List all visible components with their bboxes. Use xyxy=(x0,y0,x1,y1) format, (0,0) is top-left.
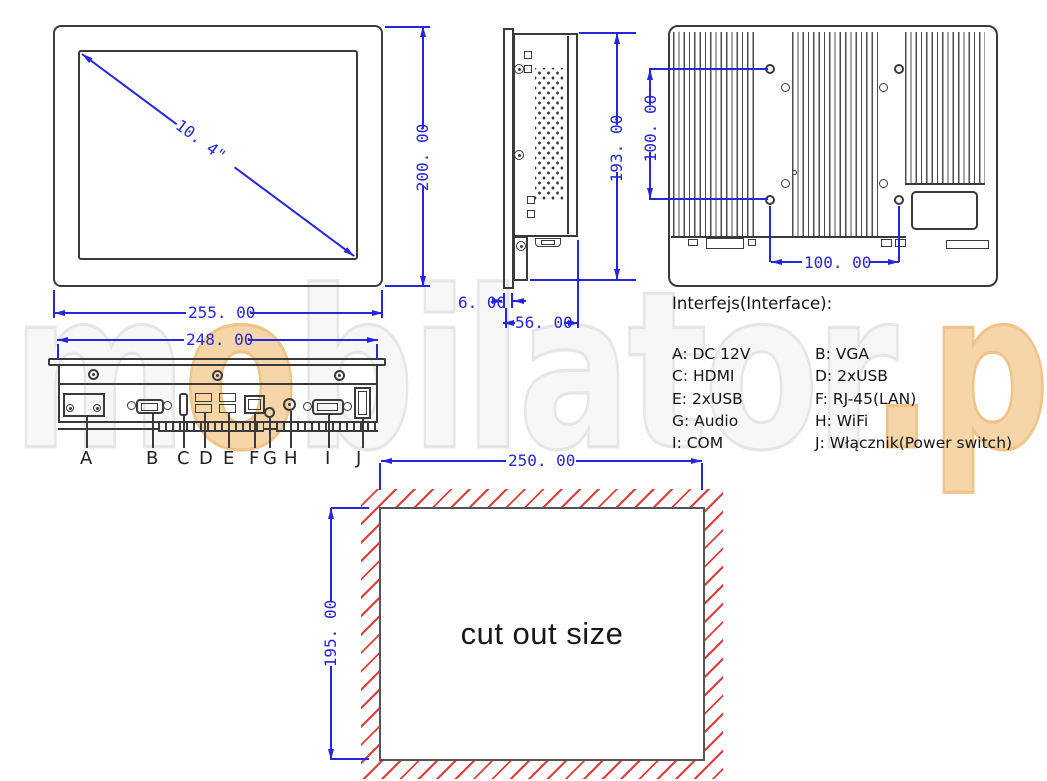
connector-outline xyxy=(748,239,756,246)
arrowhead-icon xyxy=(614,269,620,280)
port-label-h: H xyxy=(284,448,298,469)
label-plate xyxy=(911,191,978,230)
leader-line xyxy=(362,419,364,448)
connector-outline xyxy=(706,238,744,249)
dim-label-front-height: 200. 00 xyxy=(413,124,432,191)
extension-line xyxy=(769,206,771,262)
port-usb xyxy=(195,393,212,402)
heatsink-teeth xyxy=(158,422,264,432)
dim-line-segment xyxy=(54,312,186,314)
arrowhead-icon xyxy=(420,26,426,37)
connector-outline xyxy=(688,239,698,246)
legend-item: E: 2xUSB xyxy=(672,388,751,410)
arrowhead-icon xyxy=(771,259,782,265)
legend-item: D: 2xUSB xyxy=(815,365,1012,387)
port-label-a: A xyxy=(80,448,92,469)
arrowhead-icon xyxy=(57,337,68,343)
port-usb xyxy=(195,404,212,413)
port-label-i: I xyxy=(325,448,330,469)
extension-line xyxy=(898,206,900,262)
port-label-g: G xyxy=(263,448,277,469)
dim-label-front-width: 255. 00 xyxy=(188,303,255,322)
vent-square-hole xyxy=(524,65,532,73)
vesa-hole-100 xyxy=(894,195,904,205)
com-screw-hole xyxy=(303,402,312,411)
vesa-hole-75 xyxy=(781,179,790,188)
dim-line-segment xyxy=(57,339,184,341)
dim-label-vesa-horizontal: 100. 00 xyxy=(804,253,871,272)
cutout-label: cut out size xyxy=(461,616,624,652)
dim-line-segment xyxy=(248,339,378,341)
screw-icon xyxy=(66,404,74,412)
heatsink-fins xyxy=(792,32,878,236)
arrowhead-icon xyxy=(647,69,653,80)
legend-item: H: WiFi xyxy=(815,410,1012,432)
vga-screw-hole xyxy=(127,401,136,410)
side-latch-inner xyxy=(541,240,555,245)
power-switch-inner xyxy=(358,391,367,415)
port-label-c: C xyxy=(177,448,190,469)
dim-line-segment xyxy=(381,460,506,462)
arrowhead-icon xyxy=(503,320,514,326)
leader-line xyxy=(228,413,230,448)
legend-item: I: COM xyxy=(672,432,751,454)
extension-line xyxy=(376,344,378,360)
leader-line xyxy=(152,413,154,448)
arrowhead-icon xyxy=(513,298,524,304)
port-hdmi xyxy=(179,393,188,416)
connector-outline xyxy=(946,240,989,249)
screw-icon xyxy=(212,370,223,381)
legend-item: B: VGA xyxy=(815,343,1012,365)
connector-outline xyxy=(895,239,906,247)
vent-square-hole xyxy=(524,51,532,59)
extension-line xyxy=(649,68,768,70)
port-rj45-inner xyxy=(248,399,261,410)
drawing-line xyxy=(513,279,527,281)
heatsink-fins xyxy=(905,32,985,184)
arrowhead-icon xyxy=(888,259,899,265)
dim-label-bottom-width: 248. 00 xyxy=(186,330,253,349)
screw-icon xyxy=(514,150,524,160)
screw-icon xyxy=(93,404,101,412)
screw-icon xyxy=(88,369,99,380)
extension-line xyxy=(379,463,381,490)
screw-icon xyxy=(516,241,526,251)
leader-line xyxy=(254,414,256,448)
cutout-rectangle: cut out size xyxy=(379,507,705,761)
legend-item: G: Audio xyxy=(672,410,751,432)
vent-square-hole xyxy=(527,210,535,218)
extension-line xyxy=(577,240,579,328)
arrowhead-icon xyxy=(647,188,653,199)
extension-line xyxy=(331,507,369,509)
dim-line-segment xyxy=(616,33,618,125)
legend-item: J: Włącznik(Power switch) xyxy=(815,432,1012,454)
screw-icon xyxy=(334,370,345,381)
vent-square-hole xyxy=(527,196,535,204)
legend-title: Interfejs(Interface): xyxy=(672,294,832,313)
technical-drawing-canvas: mobilator.pl 10. 4" 200. 00 255. 00 248.… xyxy=(0,0,1047,781)
extension-line xyxy=(701,463,703,490)
leader-line xyxy=(269,418,271,448)
arrowhead-icon xyxy=(420,276,426,287)
drawing-line xyxy=(905,183,985,185)
dim-line-segment xyxy=(616,172,618,280)
vesa-hole-75 xyxy=(781,83,790,92)
port-label-f: F xyxy=(249,448,259,469)
leader-line xyxy=(183,415,185,448)
port-label-j: J xyxy=(356,448,361,469)
dim-line-segment xyxy=(422,26,424,129)
vesa-hole-75 xyxy=(879,179,888,188)
port-com-inner xyxy=(317,403,338,411)
dim-line-segment xyxy=(250,312,383,314)
leader-line xyxy=(86,417,88,448)
port-vga-inner xyxy=(141,403,158,411)
leader-line xyxy=(290,411,292,448)
ventilation-holes xyxy=(535,68,563,200)
port-label-d: D xyxy=(199,448,213,469)
extension-line xyxy=(331,758,369,760)
port-usb xyxy=(219,404,236,413)
arrowhead-icon xyxy=(614,33,620,44)
port-audio-jack xyxy=(264,407,275,418)
heatsink-fins xyxy=(673,32,756,236)
arrowhead-icon xyxy=(691,458,702,464)
port-usb xyxy=(219,393,236,402)
dim-label-cutout-width: 250. 00 xyxy=(508,451,575,470)
arrowhead-icon xyxy=(328,508,334,519)
legend-left-column: A: DC 12V C: HDMI E: 2xUSB G: Audio I: C… xyxy=(672,343,751,454)
dim-label-cutout-height: 195. 00 xyxy=(321,600,340,667)
connector-outline xyxy=(881,239,892,247)
port-wifi-antenna xyxy=(283,398,296,411)
legend-item: C: HDMI xyxy=(672,365,751,387)
dim-line-segment xyxy=(576,460,702,462)
vesa-hole-100 xyxy=(894,64,904,74)
dim-label-vesa-vertical: 100. 00 xyxy=(641,95,660,162)
dim-line-segment xyxy=(330,666,332,760)
screw-icon xyxy=(514,64,524,74)
dim-label-side-depth: 56. 00 xyxy=(515,313,573,332)
legend-right-column: B: VGA D: 2xUSB F: RJ-45(LAN) H: WiFi J:… xyxy=(815,343,1012,454)
extension-line xyxy=(530,279,636,281)
small-hole xyxy=(792,170,797,175)
legend-item: A: DC 12V xyxy=(672,343,751,365)
leader-line xyxy=(328,415,330,448)
arrowhead-icon xyxy=(367,337,378,343)
dim-line-segment xyxy=(330,508,332,602)
drawing-line xyxy=(567,36,569,234)
arrowhead-icon xyxy=(381,458,392,464)
arrowhead-icon xyxy=(328,749,334,760)
leader-line xyxy=(204,413,206,448)
arrowhead-icon xyxy=(54,310,65,316)
arrowhead-icon xyxy=(372,310,383,316)
extension-line xyxy=(579,32,636,34)
vesa-hole-100 xyxy=(765,195,775,205)
dim-label-bezel-depth: 6. 00 xyxy=(458,293,506,312)
extension-line xyxy=(57,344,59,360)
dim-line-segment xyxy=(422,186,424,287)
extension-line xyxy=(649,198,768,200)
port-label-e: E xyxy=(223,448,234,469)
port-label-b: B xyxy=(146,448,158,469)
vga-screw-hole xyxy=(163,401,172,410)
drawing-line xyxy=(58,428,158,430)
dim-label-side-height: 193. 00 xyxy=(607,115,626,182)
legend-item: F: RJ-45(LAN) xyxy=(815,388,1012,410)
com-screw-hole xyxy=(343,402,352,411)
vesa-hole-75 xyxy=(879,83,888,92)
